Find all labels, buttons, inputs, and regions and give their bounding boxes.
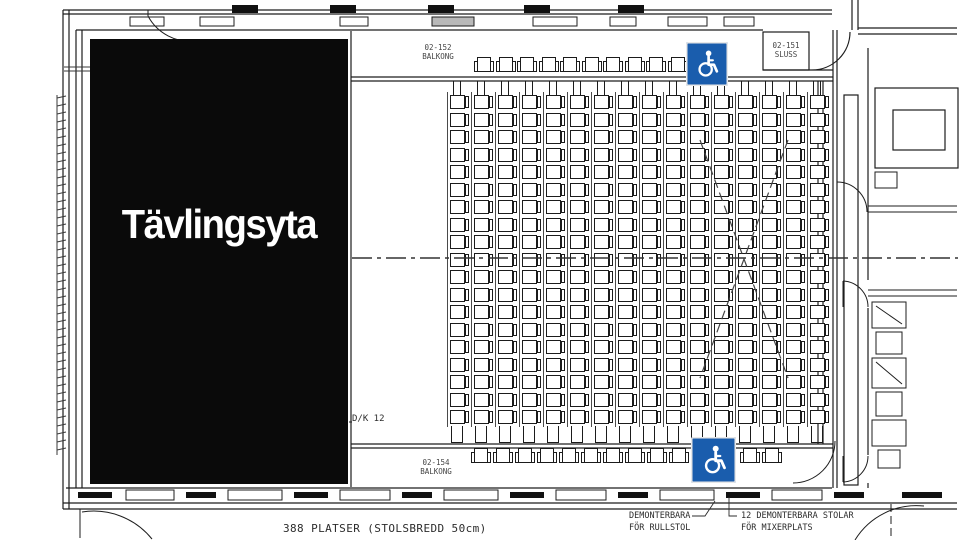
seat [498,375,513,389]
seat [522,165,537,179]
seat [618,323,633,337]
seat [738,148,753,162]
seat-row-line [807,92,808,427]
seat [786,130,801,144]
seat [546,218,561,232]
annotation-removable-mixer: 12 DEMONTERBARA STOLAR FÖR MIXERPLATS [741,511,854,534]
seat [594,305,609,319]
seat [522,305,537,319]
seat [570,270,585,284]
seat [762,358,777,372]
seat-column-foot [667,426,679,443]
wheelchair-accessible-icon [686,42,728,86]
seat [498,183,513,197]
seat [618,393,633,407]
seat-column-stem [549,81,557,95]
seat [762,253,777,267]
seat [450,410,465,424]
seat [690,270,705,284]
seat [762,183,777,197]
seat [498,235,513,249]
seat [690,288,705,302]
seat [522,113,537,127]
seat-row-line [759,92,760,427]
seat [474,253,489,267]
balcony-seat [743,448,757,463]
balcony-seat [520,57,534,72]
seat [570,95,585,109]
seat-column-foot [523,426,535,443]
seat [498,200,513,214]
balcony-seat [606,57,620,72]
seat [786,253,801,267]
seat [450,393,465,407]
seat [714,200,729,214]
seat-column-stem [501,81,509,95]
seat [618,113,633,127]
seat [666,270,681,284]
seat [474,148,489,162]
seat [810,288,825,302]
seat-column-foot [547,426,559,443]
seat [762,393,777,407]
seat [666,95,681,109]
seat [690,183,705,197]
seat [450,253,465,267]
seat [594,375,609,389]
seat [666,130,681,144]
seat-row-line [567,92,568,427]
seat [810,340,825,354]
competition-area-label: Tävlingsyta [99,201,339,248]
seat [786,288,801,302]
seat-column-foot [475,426,487,443]
seat [522,148,537,162]
seat [594,148,609,162]
seat [642,235,657,249]
seat [450,130,465,144]
seat [570,148,585,162]
seat [762,200,777,214]
seat [522,410,537,424]
balcony-seat [518,448,532,463]
seat [810,130,825,144]
seat [642,95,657,109]
seat [738,253,753,267]
seat [642,393,657,407]
seat [498,305,513,319]
seat [666,375,681,389]
seat [498,393,513,407]
balcony-seat [671,57,685,72]
seat [762,113,777,127]
seat-column-stem [789,81,797,95]
seat [810,113,825,127]
seat-column-foot [571,426,583,443]
seat [690,113,705,127]
seat [450,113,465,127]
balcony-seat [584,448,598,463]
balcony-seat [496,448,510,463]
seat-row-line [711,92,712,427]
seat [714,165,729,179]
seat [594,393,609,407]
seat [450,375,465,389]
seat [666,340,681,354]
seat [570,218,585,232]
balcony-seat [563,57,577,72]
seat [642,410,657,424]
seat [738,183,753,197]
seat [546,183,561,197]
seat [522,375,537,389]
seat [498,270,513,284]
seat [738,218,753,232]
seat [618,148,633,162]
seat [666,200,681,214]
seat [594,270,609,284]
seat [810,253,825,267]
seat [642,113,657,127]
seat [738,200,753,214]
seat [474,183,489,197]
seat [642,200,657,214]
seat [594,323,609,337]
seat [450,165,465,179]
seat [762,235,777,249]
seat [498,358,513,372]
seat [810,165,825,179]
seat [810,323,825,337]
seat [642,323,657,337]
balcony-seat [585,57,599,72]
seat [786,218,801,232]
seat [570,323,585,337]
seat [618,410,633,424]
seat [522,253,537,267]
seat [714,375,729,389]
seat [546,375,561,389]
seat [546,200,561,214]
seat-row-line [543,92,544,427]
seat [666,113,681,127]
seat [738,130,753,144]
seat [450,323,465,337]
seat [762,305,777,319]
seat [594,410,609,424]
seat [498,323,513,337]
seat [714,288,729,302]
seat [618,200,633,214]
seat [546,288,561,302]
seat [810,375,825,389]
seat [666,393,681,407]
seat [690,323,705,337]
seat [738,95,753,109]
seat [666,218,681,232]
seat [690,235,705,249]
balcony-seat [628,448,642,463]
seat [786,183,801,197]
seat [666,235,681,249]
seat-column-foot [763,426,775,443]
seat [810,305,825,319]
seat-column-foot [499,426,511,443]
balcony-seat [650,448,664,463]
seat [714,340,729,354]
seat [786,375,801,389]
seat [546,113,561,127]
seat [594,200,609,214]
seat [450,288,465,302]
seat [522,340,537,354]
seat-column-stem [477,81,485,95]
seat [738,165,753,179]
seat [738,358,753,372]
seat-column-foot [643,426,655,443]
seat [738,323,753,337]
seat [570,183,585,197]
seat [474,288,489,302]
seat [762,148,777,162]
seat [474,410,489,424]
floor-plan: Tävlingsyta 02-152 BALKONG 02-151 SLUSS … [0,0,960,540]
seat [570,393,585,407]
seat-column-stem [813,81,821,95]
seat [594,235,609,249]
seat [714,183,729,197]
seat [498,130,513,144]
seat [786,305,801,319]
seat [762,270,777,284]
seat [522,358,537,372]
seat [570,410,585,424]
seat [618,95,633,109]
seat [642,340,657,354]
seat [594,288,609,302]
seat [570,235,585,249]
seat [618,235,633,249]
seat [738,340,753,354]
seat-column-stem [645,81,653,95]
seat-column-stem [621,81,629,95]
seat [570,358,585,372]
seat [546,235,561,249]
seat [450,183,465,197]
seat [570,113,585,127]
seat [690,130,705,144]
seat [474,393,489,407]
seat [762,218,777,232]
seat [546,410,561,424]
seat [810,270,825,284]
seat [618,288,633,302]
seat [522,288,537,302]
seat [594,340,609,354]
seat [714,113,729,127]
balcony-seat [540,448,554,463]
balcony-seat [542,57,556,72]
seat-row-line [591,92,592,427]
seat [714,148,729,162]
seat [714,358,729,372]
seat [762,410,777,424]
seat [474,235,489,249]
seat [594,113,609,127]
seat [810,235,825,249]
seat [642,165,657,179]
seat [546,165,561,179]
seat [666,305,681,319]
seat [594,130,609,144]
seat-row-line [519,92,520,427]
seat [666,253,681,267]
seat [642,270,657,284]
seat [522,130,537,144]
seat [738,393,753,407]
seat [618,340,633,354]
seat-column-foot [811,426,823,443]
seat [450,148,465,162]
seat [690,148,705,162]
seat [786,340,801,354]
seat [594,95,609,109]
seat [738,305,753,319]
wheelchair-glyph [697,442,731,478]
seat-column-foot [739,426,751,443]
seat [546,340,561,354]
seat [738,375,753,389]
seat [498,340,513,354]
wheelchair-accessible-icon [691,437,736,483]
seat [810,358,825,372]
seat [546,393,561,407]
balcony-seat [765,448,779,463]
seat [810,218,825,232]
seat [642,358,657,372]
seat [810,183,825,197]
seat [498,95,513,109]
seat-row-line [447,92,448,427]
seat [714,253,729,267]
seat [642,183,657,197]
seat-row-line [471,92,472,427]
seat [642,375,657,389]
seat [570,253,585,267]
seat-column-foot [595,426,607,443]
seat [642,148,657,162]
seat [786,165,801,179]
seat [666,183,681,197]
seat [618,375,633,389]
seat [666,288,681,302]
seat [618,358,633,372]
seat [618,165,633,179]
seat-row-line [639,92,640,427]
seat [810,410,825,424]
seat-column-stem [573,81,581,95]
seat [570,340,585,354]
seat [570,130,585,144]
seat [642,218,657,232]
seat [810,393,825,407]
seat [474,218,489,232]
seat [690,218,705,232]
seat [546,323,561,337]
balcony-seat [499,57,513,72]
balcony-seat [672,448,686,463]
seat [786,148,801,162]
seat [546,305,561,319]
seat [594,165,609,179]
seat [522,200,537,214]
balcony-seat [649,57,663,72]
seat [786,95,801,109]
wheelchair-glyph [691,47,723,81]
seat [474,95,489,109]
seat [738,410,753,424]
seat [570,165,585,179]
balcony-seat [474,448,488,463]
seat-row-line [663,92,664,427]
seat [474,200,489,214]
seat [690,375,705,389]
seat [498,218,513,232]
total-seats-note: 388 PLATSER (STOLSBREDD 50cm) [283,522,487,535]
seat [738,113,753,127]
seat [666,165,681,179]
seat [762,130,777,144]
seat [762,95,777,109]
seat [690,165,705,179]
seat [762,375,777,389]
seat-column-stem [765,81,773,95]
seat [642,130,657,144]
seat [474,113,489,127]
seat [498,113,513,127]
seat [450,95,465,109]
seat [474,305,489,319]
competition-area-block: Tävlingsyta [90,39,348,484]
seat [618,253,633,267]
seat-column-stem [741,81,749,95]
seat [810,200,825,214]
seat [714,130,729,144]
seat [474,358,489,372]
seat-column-foot [787,426,799,443]
seat-column-foot [619,426,631,443]
seat [570,200,585,214]
seat [786,410,801,424]
seat [498,165,513,179]
seat [762,165,777,179]
seat [474,340,489,354]
seat-row-line [735,92,736,427]
seat-column-stem [597,81,605,95]
seat [546,358,561,372]
seat [498,288,513,302]
seat [786,113,801,127]
seat [498,253,513,267]
seat [714,270,729,284]
balcony-seat [562,448,576,463]
seat [546,253,561,267]
seat-column-stem [525,81,533,95]
seat [762,340,777,354]
seat [666,410,681,424]
seat [714,323,729,337]
seat [642,253,657,267]
